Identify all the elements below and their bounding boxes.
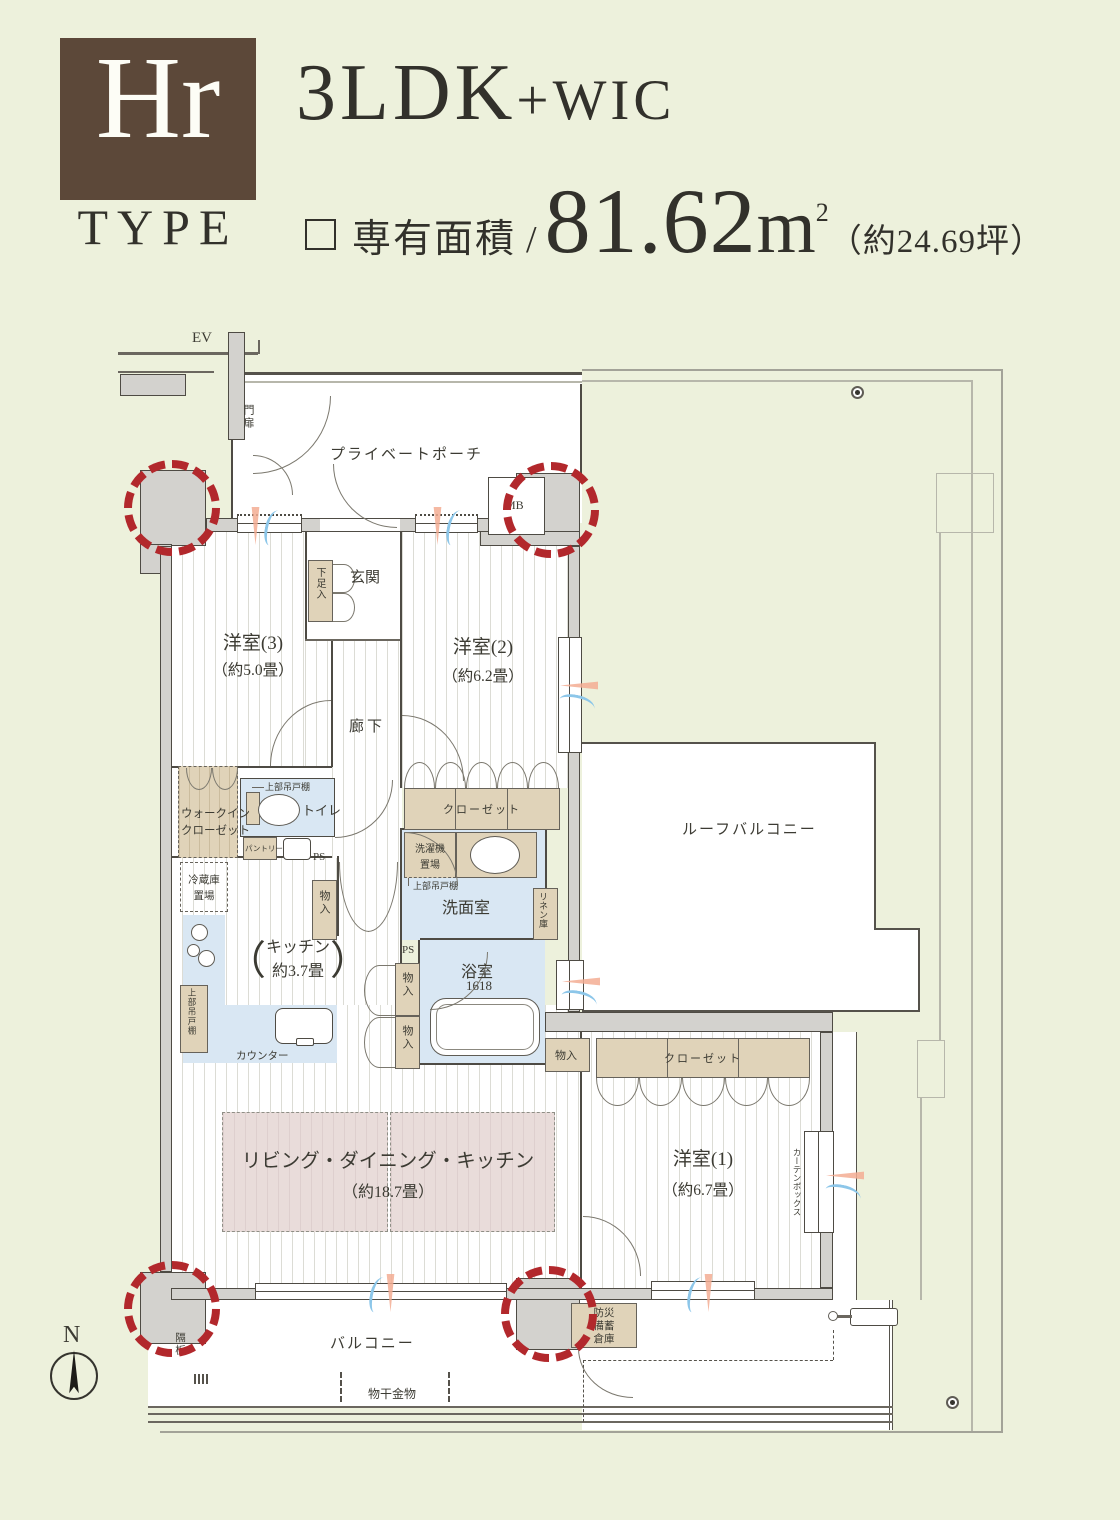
porch-fence-inner-line [232,381,582,383]
balcony-rail-3 [148,1421,893,1423]
area-row: 専有面積 / 81.62 m 2 （約24.69坪） [305,168,1044,274]
room2-label: 洋室(2) [453,632,513,659]
roof-balcony-area [582,742,876,1012]
area-label: 専有面積 [352,208,516,264]
service-dashed-v1 [583,1360,584,1422]
vanity-bowl [470,836,520,874]
layout-main: 3LDK [296,49,516,137]
airflow-icon [428,505,464,549]
room1-label: 洋室(1) [673,1144,733,1171]
service-dashed-h [583,1360,833,1361]
area-checkbox-icon [305,219,336,250]
type-code: Hr [60,30,256,166]
airflow-icon [684,1272,720,1316]
kitchen-paren-close: ） [330,928,370,986]
room3-size-label: （約5.0畳） [212,658,293,680]
kitchen-upper-cabinet-label: 上部吊戸棚 [186,988,198,1036]
partition-board-hatch [194,1374,210,1384]
room1-size-label: （約6.7畳） [662,1178,743,1200]
drain-top-right [851,386,864,399]
ev-line-2 [118,371,214,373]
linen-label: リネン庫 [537,892,550,928]
disaster-label-line3: 倉庫 [594,1331,615,1346]
layout-title: 3LDK+WIC [296,48,675,139]
washroom-label: 洗面室 [442,894,490,918]
drain-bottom-right [946,1396,959,1409]
ev-block [120,374,186,396]
room2-size-label: （約6.2畳） [442,664,523,686]
wic-label-line2: クローゼット [181,822,250,838]
roof-balcony-step [874,928,920,1012]
partition-bath-bottom [420,1063,545,1065]
corridor-label: 廊下 [349,715,385,736]
counter-label: カウンター [236,1048,289,1063]
wall-right-column [568,546,580,1012]
room1-closet-label: クローゼット [664,1050,742,1066]
hall-storage-label-1: 物入 [399,972,415,998]
service-dashed-v2 [833,1330,834,1360]
stove-burner-1 [191,924,208,941]
faucet-pipe [836,1315,852,1318]
kitchen-size-label: 約3.7畳 [272,957,324,981]
north-label: N [63,1322,80,1349]
laundry-hanger-label: 物干金物 [368,1385,416,1402]
site-line-top-outer [582,369,1003,371]
toilet-upper-cabinet-label: 上部吊戸棚 [265,780,310,793]
washer-label-line1: 洗濯機 [415,840,445,855]
porch-right-line [580,384,582,476]
faucet-handle [828,1311,838,1321]
ldk-storage-label: 物入 [555,1047,577,1063]
genkan-step-line [305,639,402,641]
ldk-size-label: （約18.7畳） [342,1178,434,1202]
wall-room1-top [545,1012,833,1032]
ps-label-1: PS [313,851,325,863]
site-line-low [920,1098,922,1300]
hand-sink [283,838,311,860]
roof-balcony-label: ルーフバルコニー [682,818,817,839]
toilet-bowl [258,794,300,826]
pillar-highlight-circle [124,460,220,556]
private-porch-label: プライベートポーチ [330,443,483,464]
area-sup: 2 [816,198,829,228]
site-line-mid [939,533,941,1040]
bath-size-label: 1618 [466,978,492,994]
hall-storage-arc [364,1017,395,1068]
site-line-top-inner [582,380,972,382]
airflow-icon [822,1166,866,1202]
pillar-highlight-circle [124,1261,220,1357]
corridor-storage-label: 物入 [316,890,332,916]
airflow-icon [366,1272,402,1316]
shoe-box-arc [333,593,355,622]
pillar-highlight-circle [503,462,599,558]
toilet-label: トイレ [302,800,341,819]
faucet-body [850,1308,898,1326]
washroom-upper-cabinet-label: 上部吊戸棚 [413,879,458,892]
room3-label: 洋室(3) [223,628,283,655]
wall-left [160,546,172,1272]
shoe-box-label: 下足入 [312,567,327,600]
partition-genkan-room3 [305,531,307,641]
layout-plus: +WIC [516,69,675,132]
type-label: TYPE [54,198,262,256]
area-slash: / [526,218,537,262]
site-line-bottom [160,1431,1003,1433]
curtain-box-label: カーテンボックス [791,1148,803,1216]
stove-burner-3 [198,950,215,967]
kitchen-paren-open: （ [226,928,266,986]
kitchen-label-group: （ キッチン 約3.7畳 ） [226,928,370,986]
pantry-label: パントリー [245,843,283,854]
laundry-tick-right [448,1372,450,1402]
hall-storage-label-2: 物入 [399,1025,415,1051]
kitchen-sink-handle [296,1038,314,1046]
gate-label: 門扉 [240,404,256,430]
room2-closet-label: クローゼット [443,801,521,817]
floor-plan-page: Hr TYPE 3LDK+WIC 専有面積 / 81.62 m 2 （約24.6… [0,0,1120,1520]
airflow-icon [556,676,600,712]
site-line-right-outer [1001,369,1003,1433]
site-step-upper [936,473,994,533]
balcony-rail-2 [148,1413,893,1415]
type-code-box: Hr [60,38,256,200]
area-unit: m [757,184,816,271]
area-value: 81.62 [545,168,757,274]
fridge-label-line1: 冷蔵庫 [188,872,220,887]
balcony-rail-1 [148,1406,893,1408]
ldk-label: リビング・ダイニング・キッチン [242,1144,535,1173]
ps-label-2: PS [402,944,414,956]
genkan-label: 玄関 [350,566,380,587]
laundry-tick-left [340,1372,342,1402]
ev-tick [258,340,260,354]
airflow-icon [246,505,282,549]
fridge-label-line2: 置場 [194,888,215,903]
wic-label-line1: ウォークイン [181,805,250,821]
fridge-space [180,862,228,912]
airflow-icon [558,972,602,1008]
partition-washroom-bath [420,938,545,940]
partition-room3-corridor [331,641,333,767]
site-step-lower [917,1040,945,1098]
area-tsubo: （約24.69坪） [829,214,1044,262]
balcony-label: バルコニー [330,1332,415,1353]
pillar-highlight-circle [501,1266,597,1362]
ev-label: EV [192,330,212,347]
washer-label-line2: 置場 [420,856,440,871]
site-line-right-inner [971,380,973,1433]
kitchen-label: キッチン [266,933,330,957]
washroom-cabinet-tick [408,878,409,886]
toilet-cabinet-tick [252,787,264,788]
